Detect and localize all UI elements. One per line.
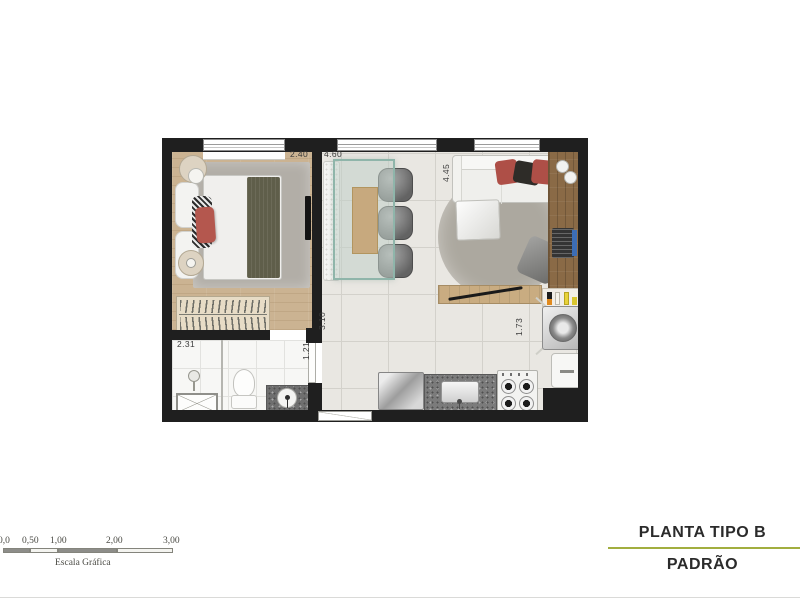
bedroom-window-sill [203, 152, 285, 160]
ottoman [455, 199, 500, 241]
toilet-tank [231, 395, 257, 409]
dim-hall-width: 1.21 [301, 342, 311, 360]
nightstand-lamp-icon [188, 168, 204, 184]
stove-knobs-icon [502, 373, 533, 376]
desk-book [572, 230, 577, 256]
plan-subtitle: PADRÃO [605, 556, 800, 574]
bottle-shelf [542, 288, 582, 307]
scale-bar: 0,0 0,50 1,00 2,00 3,00 Escala Gráfica [0, 536, 190, 572]
page-bottom-rule [0, 597, 800, 598]
scale-caption: Escala Gráfica [55, 558, 111, 568]
shower-glass-partition [221, 338, 223, 410]
wall-bottom [162, 410, 588, 422]
sofa-armrest [453, 156, 462, 202]
nightstand-lamp2-icon [186, 258, 196, 268]
hangers-row-icon [180, 317, 266, 330]
scale-tick-label: 2,00 [106, 536, 123, 546]
scale-segment [3, 548, 30, 553]
faucet-stem [287, 399, 288, 408]
wall-left [162, 138, 172, 422]
kitchen-fridge [378, 372, 424, 410]
wardrobe-rail [179, 314, 267, 315]
wall-right [578, 138, 588, 422]
stove [497, 370, 538, 412]
scale-bar-ruler [3, 548, 173, 555]
scale-tick-label: 1,00 [50, 536, 67, 546]
bottle-icon [555, 292, 560, 305]
burner-icon [519, 379, 534, 394]
burner-icon [519, 396, 534, 411]
table-runner [352, 187, 378, 254]
bedroom-tv [305, 196, 311, 240]
dim-bedroom-depth: 3.10 [317, 312, 327, 330]
dim-bathroom-width: 2.31 [177, 339, 195, 349]
dim-living-width: 4.60 [324, 149, 342, 159]
scale-segment [30, 548, 58, 553]
living-window [337, 139, 437, 151]
bedroom-window [203, 139, 285, 151]
dim-bedroom-width: 2.40 [290, 149, 308, 159]
scale-tick-label: 0,50 [22, 536, 39, 546]
entrance-opening [318, 411, 372, 421]
hangers-row-icon [180, 300, 266, 313]
wall-junction [306, 328, 322, 343]
washing-machine [542, 306, 582, 350]
plate-icon [564, 171, 577, 184]
plan-title: PLANTA TIPO B [605, 524, 800, 542]
burner-icon [501, 379, 516, 394]
wardrobe [176, 296, 270, 332]
sofa-window [474, 139, 540, 151]
low-shelf [438, 285, 542, 304]
burner-icon [501, 396, 516, 411]
dim-kitchen-depth: 1.73 [514, 318, 524, 336]
shower-stem [193, 381, 195, 391]
scale-tick-label: 0,0 [0, 536, 10, 546]
scale-segment [58, 548, 117, 553]
washer-drum-icon [549, 314, 577, 342]
laptop [552, 228, 574, 258]
toilet-bowl [233, 369, 255, 397]
scale-tick-label: 3,00 [163, 536, 180, 546]
title-divider-line [608, 547, 800, 549]
faucet-stem [459, 402, 460, 409]
title-block: PLANTA TIPO B PADRÃO [605, 522, 800, 582]
dim-living-depth: 4.45 [441, 164, 451, 182]
floor-plan-page: 2.40 4.60 4.45 3.10 1.21 2.31 1.73 0,0 0… [0, 0, 800, 600]
bottle-icon [572, 292, 577, 305]
bottle-icon [564, 292, 569, 305]
wall-laundry-step [543, 388, 588, 412]
cabinet-handle-icon [560, 370, 574, 373]
bottle-icon [547, 292, 552, 305]
bed-blanket [247, 177, 280, 278]
bed-pillow-red [195, 206, 216, 243]
scale-segment [117, 548, 173, 553]
